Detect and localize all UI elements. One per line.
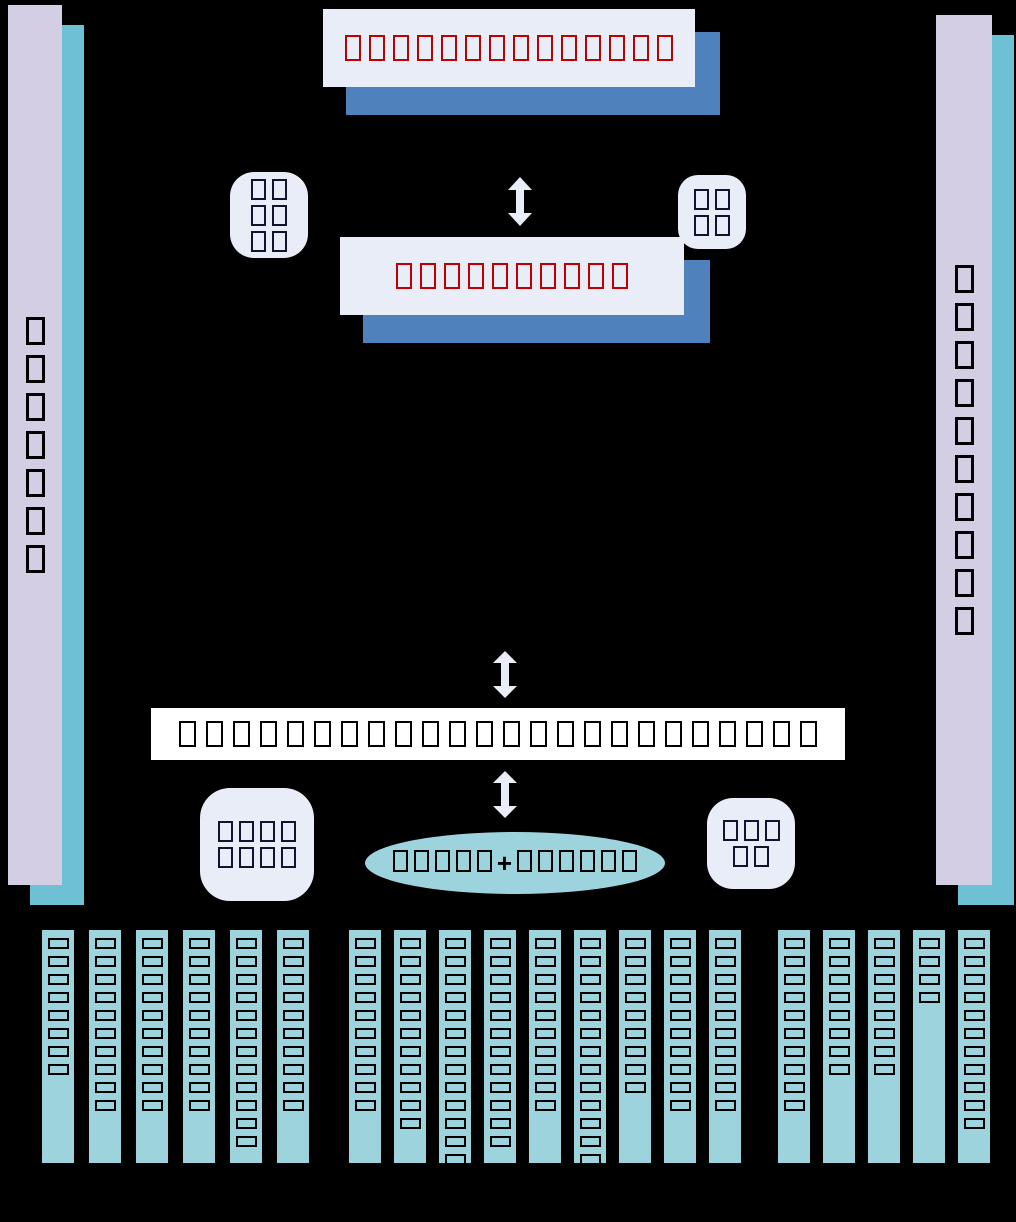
missing-glyph-box [784, 1010, 805, 1021]
missing-glyph-box [142, 1082, 163, 1093]
missing-glyph-box [964, 956, 985, 967]
department-column [823, 930, 855, 1163]
department-group-2 [349, 930, 741, 1163]
missing-glyph-box [719, 721, 736, 747]
missing-glyph-box [48, 956, 69, 967]
missing-glyph-box [48, 1046, 69, 1057]
missing-glyph-box [580, 956, 601, 967]
missing-glyph-box [955, 607, 974, 635]
missing-glyph-box [283, 1082, 304, 1093]
missing-glyph-box [445, 1118, 466, 1129]
missing-glyph-box [435, 850, 450, 872]
missing-glyph-box [580, 992, 601, 1003]
missing-glyph-box [580, 1118, 601, 1129]
missing-glyph-box [580, 1010, 601, 1021]
missing-glyph-box [964, 1010, 985, 1021]
missing-glyph-box [580, 1100, 601, 1111]
missing-glyph-box [281, 821, 296, 842]
missing-glyph-box [784, 938, 805, 949]
missing-glyph-box [829, 992, 850, 1003]
missing-glyph-box [95, 992, 116, 1003]
missing-glyph-box [445, 1136, 466, 1147]
missing-glyph-box [622, 850, 637, 872]
missing-glyph-box [829, 1046, 850, 1057]
missing-glyph-box [95, 1100, 116, 1111]
missing-glyph-box [535, 1046, 556, 1057]
missing-glyph-box [445, 956, 466, 967]
missing-glyph-box [490, 974, 511, 985]
center-ellipse: + [365, 832, 665, 894]
missing-glyph-box [784, 974, 805, 985]
missing-glyph-box [414, 850, 429, 872]
missing-glyph-box [189, 1010, 210, 1021]
missing-glyph-box [189, 938, 210, 949]
missing-glyph-box [345, 35, 361, 61]
missing-glyph-box [355, 1082, 376, 1093]
glyph-row [691, 189, 733, 210]
missing-glyph-box [715, 1010, 736, 1021]
missing-glyph-box [559, 850, 574, 872]
missing-glyph-box [964, 974, 985, 985]
missing-glyph-box [420, 263, 436, 289]
missing-glyph-box [625, 992, 646, 1003]
missing-glyph-box [490, 992, 511, 1003]
missing-glyph-box [236, 956, 257, 967]
glyph-row [248, 205, 290, 226]
missing-glyph-box [670, 1028, 691, 1039]
department-column [574, 930, 606, 1163]
missing-glyph-box [393, 850, 408, 872]
department-column [439, 930, 471, 1163]
missing-glyph-box [670, 1064, 691, 1075]
missing-glyph-box [657, 35, 673, 61]
missing-glyph-box [723, 820, 738, 841]
missing-glyph-box [670, 1010, 691, 1021]
missing-glyph-box [715, 1100, 736, 1111]
missing-glyph-box [829, 1028, 850, 1039]
missing-glyph-box [490, 1046, 511, 1057]
missing-glyph-box [236, 992, 257, 1003]
missing-glyph-box [445, 992, 466, 1003]
missing-glyph-box [236, 1010, 257, 1021]
missing-glyph-box [400, 1064, 421, 1075]
missing-glyph-box [490, 1010, 511, 1021]
missing-glyph-box [492, 263, 508, 289]
missing-glyph-box [919, 992, 940, 1003]
missing-glyph-box [189, 974, 210, 985]
department-column [529, 930, 561, 1163]
missing-glyph-box [314, 721, 331, 747]
missing-glyph-box [829, 938, 850, 949]
missing-glyph-box [189, 1028, 210, 1039]
department-group-1 [42, 930, 309, 1163]
missing-glyph-box [625, 956, 646, 967]
missing-glyph-box [26, 317, 45, 345]
missing-glyph-box [239, 847, 254, 868]
missing-glyph-box [746, 721, 763, 747]
missing-glyph-box [955, 265, 974, 293]
missing-glyph-box [829, 1010, 850, 1021]
missing-glyph-box [517, 850, 532, 872]
missing-glyph-box [251, 205, 266, 226]
missing-glyph-box [395, 721, 412, 747]
missing-glyph-box [535, 956, 556, 967]
missing-glyph-box [490, 1100, 511, 1111]
missing-glyph-box [236, 1082, 257, 1093]
missing-glyph-box [490, 1136, 511, 1147]
bottom-left-badge [200, 788, 314, 901]
missing-glyph-box [26, 393, 45, 421]
missing-glyph-box [445, 938, 466, 949]
missing-glyph-box [233, 721, 250, 747]
missing-glyph-box [625, 974, 646, 985]
missing-glyph-box [955, 417, 974, 445]
missing-glyph-box [283, 956, 304, 967]
missing-glyph-box [601, 850, 616, 872]
missing-glyph-box [490, 1118, 511, 1129]
missing-glyph-box [236, 974, 257, 985]
missing-glyph-box [715, 1046, 736, 1057]
department-column [349, 930, 381, 1163]
center-band [148, 705, 848, 763]
missing-glyph-box [95, 956, 116, 967]
missing-glyph-box [48, 992, 69, 1003]
missing-glyph-box [400, 1118, 421, 1129]
missing-glyph-box [692, 721, 709, 747]
diagram-canvas: + [0, 0, 1016, 1222]
missing-glyph-box [26, 507, 45, 535]
missing-glyph-box [625, 1028, 646, 1039]
missing-glyph-box [142, 1064, 163, 1075]
missing-glyph-box [715, 215, 730, 236]
missing-glyph-box [465, 35, 481, 61]
missing-glyph-box [281, 847, 296, 868]
department-column [42, 930, 74, 1163]
missing-glyph-box [535, 1028, 556, 1039]
missing-glyph-box [611, 721, 628, 747]
missing-glyph-box [445, 1082, 466, 1093]
missing-glyph-box [477, 850, 492, 872]
missing-glyph-box [142, 1100, 163, 1111]
missing-glyph-box [829, 974, 850, 985]
missing-glyph-box [260, 821, 275, 842]
missing-glyph-box [765, 820, 780, 841]
missing-glyph-box [355, 1010, 376, 1021]
missing-glyph-box [283, 1028, 304, 1039]
department-column [484, 930, 516, 1163]
missing-glyph-box [400, 992, 421, 1003]
missing-glyph-box [964, 1082, 985, 1093]
missing-glyph-box [445, 1028, 466, 1039]
missing-glyph-box [189, 1082, 210, 1093]
missing-glyph-box [874, 1064, 895, 1075]
missing-glyph-box [490, 1028, 511, 1039]
missing-glyph-box [355, 956, 376, 967]
plus-sign: + [497, 850, 512, 876]
missing-glyph-box [588, 263, 604, 289]
missing-glyph-box [48, 1028, 69, 1039]
missing-glyph-box [919, 974, 940, 985]
missing-glyph-box [490, 1064, 511, 1075]
glyph-row [248, 179, 290, 200]
missing-glyph-box [829, 1064, 850, 1075]
missing-glyph-box [580, 1154, 601, 1163]
missing-glyph-box [355, 1064, 376, 1075]
missing-glyph-box [715, 974, 736, 985]
missing-glyph-box [625, 1082, 646, 1093]
missing-glyph-box [535, 974, 556, 985]
missing-glyph-box [694, 215, 709, 236]
ellipse-right-glyphs [514, 850, 640, 877]
missing-glyph-box [400, 974, 421, 985]
missing-glyph-box [580, 938, 601, 949]
missing-glyph-box [919, 956, 940, 967]
missing-glyph-box [964, 938, 985, 949]
missing-glyph-box [490, 1082, 511, 1093]
missing-glyph-box [530, 721, 547, 747]
missing-glyph-box [272, 179, 287, 200]
missing-glyph-box [393, 35, 409, 61]
glyph-row [720, 820, 783, 841]
department-column [778, 930, 810, 1163]
missing-glyph-box [754, 846, 769, 867]
missing-glyph-box [955, 303, 974, 331]
missing-glyph-box [400, 1010, 421, 1021]
missing-glyph-box [287, 721, 304, 747]
top-left-badge [230, 172, 308, 258]
missing-glyph-box [964, 1100, 985, 1111]
missing-glyph-box [445, 974, 466, 985]
missing-glyph-box [535, 1010, 556, 1021]
missing-glyph-box [557, 721, 574, 747]
missing-glyph-box [537, 35, 553, 61]
department-column [868, 930, 900, 1163]
department-column [394, 930, 426, 1163]
missing-glyph-box [612, 263, 628, 289]
missing-glyph-box [355, 1046, 376, 1057]
missing-glyph-box [784, 1100, 805, 1111]
missing-glyph-box [955, 341, 974, 369]
missing-glyph-box [513, 35, 529, 61]
top-title-box [323, 9, 695, 87]
missing-glyph-box [456, 850, 471, 872]
missing-glyph-box [445, 1154, 466, 1163]
missing-glyph-box [919, 938, 940, 949]
missing-glyph-box [272, 231, 287, 252]
missing-glyph-box [784, 1046, 805, 1057]
missing-glyph-box [665, 721, 682, 747]
missing-glyph-box [236, 1100, 257, 1111]
missing-glyph-box [874, 956, 895, 967]
missing-glyph-box [964, 1028, 985, 1039]
department-column [958, 930, 990, 1163]
missing-glyph-box [95, 974, 116, 985]
missing-glyph-box [260, 721, 277, 747]
missing-glyph-box [580, 1064, 601, 1075]
missing-glyph-box [784, 1028, 805, 1039]
missing-glyph-box [580, 850, 595, 872]
missing-glyph-box [189, 1100, 210, 1111]
missing-glyph-box [283, 1010, 304, 1021]
missing-glyph-box [236, 938, 257, 949]
double-arrow-icon [492, 771, 518, 818]
missing-glyph-box [449, 721, 466, 747]
missing-glyph-box [829, 956, 850, 967]
glyph-row [248, 231, 290, 252]
missing-glyph-box [964, 1118, 985, 1129]
missing-glyph-box [400, 1046, 421, 1057]
missing-glyph-box [283, 1100, 304, 1111]
missing-glyph-box [441, 35, 457, 61]
missing-glyph-box [142, 1028, 163, 1039]
missing-glyph-box [670, 1082, 691, 1093]
missing-glyph-box [625, 1046, 646, 1057]
missing-glyph-box [95, 938, 116, 949]
missing-glyph-box [535, 1100, 556, 1111]
missing-glyph-box [964, 1046, 985, 1057]
department-column [913, 930, 945, 1163]
missing-glyph-box [400, 1100, 421, 1111]
glyph-row [730, 846, 772, 867]
missing-glyph-box [670, 974, 691, 985]
missing-glyph-box [784, 1064, 805, 1075]
missing-glyph-box [476, 721, 493, 747]
missing-glyph-box [715, 956, 736, 967]
department-column [230, 930, 262, 1163]
missing-glyph-box [670, 938, 691, 949]
missing-glyph-box [955, 569, 974, 597]
missing-glyph-box [142, 1046, 163, 1057]
double-arrow-icon [507, 177, 533, 226]
missing-glyph-box [584, 721, 601, 747]
missing-glyph-box [625, 1010, 646, 1021]
missing-glyph-box [516, 263, 532, 289]
missing-glyph-box [368, 721, 385, 747]
missing-glyph-box [26, 431, 45, 459]
missing-glyph-box [580, 974, 601, 985]
missing-glyph-box [715, 938, 736, 949]
missing-glyph-box [670, 992, 691, 1003]
department-column [709, 930, 741, 1163]
missing-glyph-box [400, 956, 421, 967]
missing-glyph-box [26, 355, 45, 383]
missing-glyph-box [445, 1064, 466, 1075]
missing-glyph-box [638, 721, 655, 747]
missing-glyph-box [95, 1010, 116, 1021]
missing-glyph-box [236, 1046, 257, 1057]
missing-glyph-box [773, 721, 790, 747]
missing-glyph-box [95, 1064, 116, 1075]
missing-glyph-box [538, 850, 553, 872]
missing-glyph-box [964, 1064, 985, 1075]
missing-glyph-box [715, 1064, 736, 1075]
missing-glyph-box [715, 1082, 736, 1093]
department-column [183, 930, 215, 1163]
missing-glyph-box [580, 1082, 601, 1093]
missing-glyph-box [341, 721, 358, 747]
missing-glyph-box [142, 938, 163, 949]
missing-glyph-box [955, 493, 974, 521]
department-column [89, 930, 121, 1163]
missing-glyph-box [283, 992, 304, 1003]
missing-glyph-box [369, 35, 385, 61]
missing-glyph-box [48, 974, 69, 985]
missing-glyph-box [283, 974, 304, 985]
missing-glyph-box [445, 1010, 466, 1021]
missing-glyph-box [784, 956, 805, 967]
missing-glyph-box [444, 263, 460, 289]
glyph-row [215, 821, 299, 842]
missing-glyph-box [189, 992, 210, 1003]
missing-glyph-box [26, 469, 45, 497]
missing-glyph-box [874, 1010, 895, 1021]
missing-glyph-box [142, 992, 163, 1003]
missing-glyph-box [95, 1028, 116, 1039]
missing-glyph-box [236, 1136, 257, 1147]
missing-glyph-box [355, 992, 376, 1003]
missing-glyph-box [535, 992, 556, 1003]
top-right-badge [678, 175, 746, 249]
missing-glyph-box [251, 179, 266, 200]
missing-glyph-box [535, 938, 556, 949]
missing-glyph-box [48, 1064, 69, 1075]
missing-glyph-box [585, 35, 601, 61]
missing-glyph-box [48, 1010, 69, 1021]
missing-glyph-box [189, 1064, 210, 1075]
missing-glyph-box [784, 992, 805, 1003]
missing-glyph-box [800, 721, 817, 747]
missing-glyph-box [251, 231, 266, 252]
missing-glyph-box [874, 1028, 895, 1039]
missing-glyph-box [445, 1100, 466, 1111]
missing-glyph-box [236, 1064, 257, 1075]
missing-glyph-box [417, 35, 433, 61]
missing-glyph-box [400, 1028, 421, 1039]
missing-glyph-box [715, 189, 730, 210]
missing-glyph-box [964, 992, 985, 1003]
glyph-row [215, 847, 299, 868]
missing-glyph-box [218, 847, 233, 868]
missing-glyph-box [218, 821, 233, 842]
missing-glyph-box [142, 974, 163, 985]
missing-glyph-box [355, 1028, 376, 1039]
missing-glyph-box [670, 1100, 691, 1111]
missing-glyph-box [283, 1064, 304, 1075]
missing-glyph-box [239, 821, 254, 842]
missing-glyph-box [48, 938, 69, 949]
missing-glyph-box [283, 938, 304, 949]
missing-glyph-box [422, 721, 439, 747]
missing-glyph-box [561, 35, 577, 61]
missing-glyph-box [26, 545, 45, 573]
glyph-row [691, 215, 733, 236]
missing-glyph-box [580, 1046, 601, 1057]
missing-glyph-box [633, 35, 649, 61]
ellipse-left-glyphs [390, 850, 495, 877]
missing-glyph-box [874, 992, 895, 1003]
missing-glyph-box [503, 721, 520, 747]
department-column [136, 930, 168, 1163]
missing-glyph-box [874, 974, 895, 985]
missing-glyph-box [625, 1064, 646, 1075]
department-group-3 [778, 930, 990, 1163]
missing-glyph-box [355, 938, 376, 949]
missing-glyph-box [955, 455, 974, 483]
missing-glyph-box [142, 1010, 163, 1021]
bottom-right-badge [707, 798, 795, 889]
missing-glyph-box [95, 1046, 116, 1057]
missing-glyph-box [609, 35, 625, 61]
